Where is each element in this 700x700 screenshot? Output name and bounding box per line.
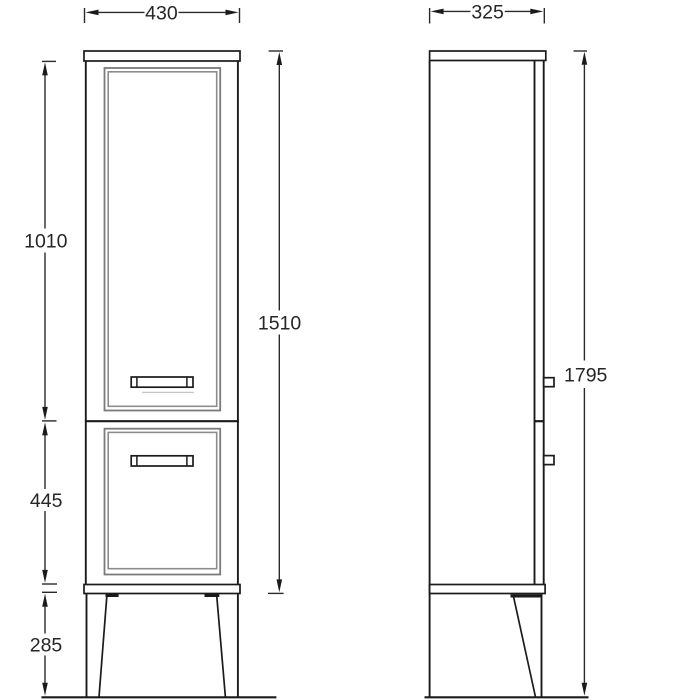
svg-text:1795: 1795 (564, 364, 608, 386)
svg-text:285: 285 (30, 635, 63, 657)
svg-text:430: 430 (145, 3, 178, 25)
svg-text:1510: 1510 (258, 312, 302, 334)
svg-text:325: 325 (471, 2, 504, 24)
svg-text:445: 445 (30, 490, 63, 512)
svg-text:1010: 1010 (24, 231, 68, 253)
